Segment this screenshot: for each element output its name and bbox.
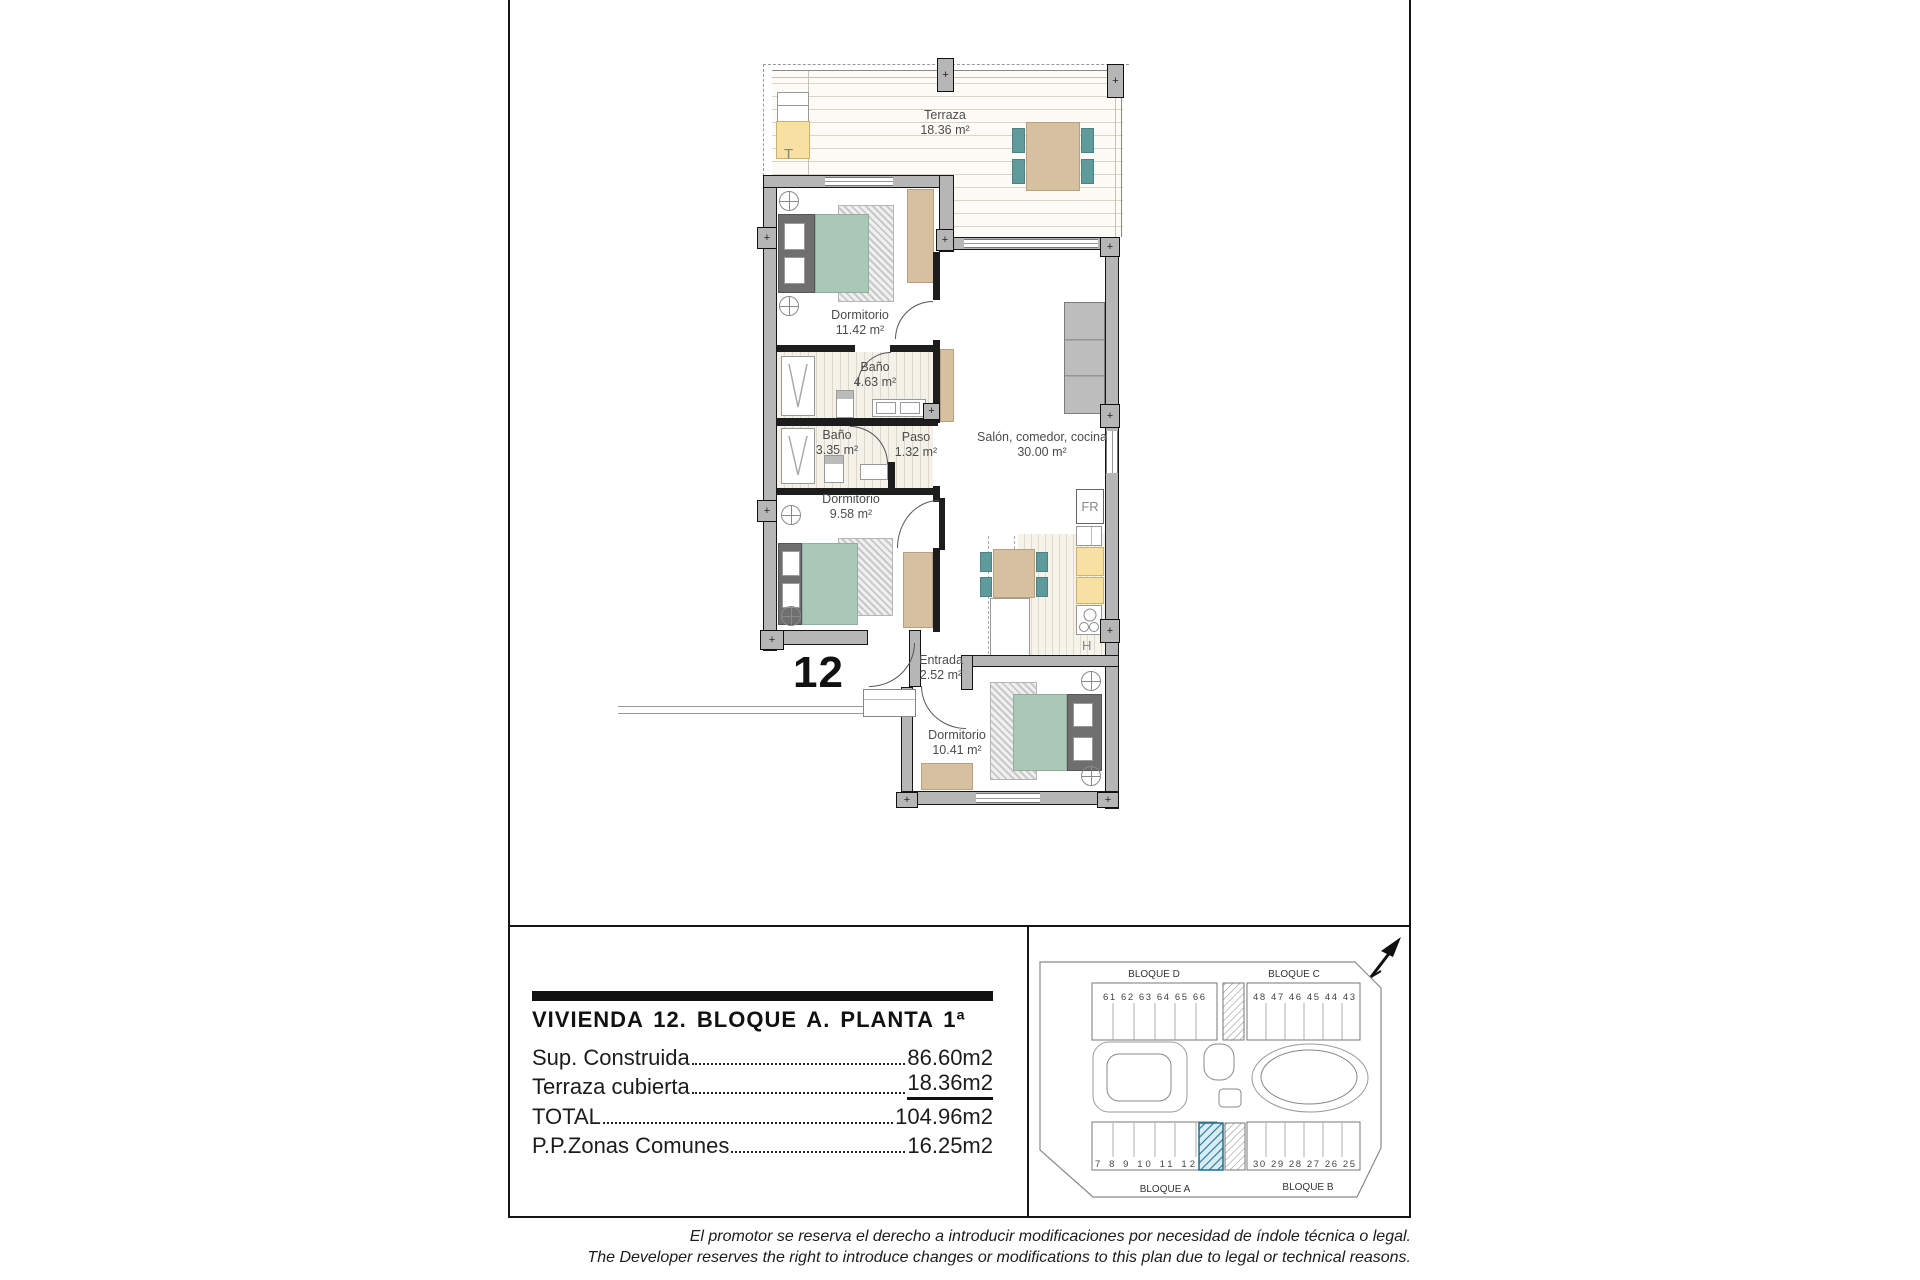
wall xyxy=(777,345,855,352)
page-title: VIVIENDA 12. BLOQUE A. PLANTA 1ª xyxy=(532,1007,966,1033)
pillow xyxy=(1073,737,1093,761)
title-bar xyxy=(532,991,993,1001)
bed xyxy=(802,543,858,625)
stair-core xyxy=(1225,1123,1245,1170)
area-table: Sup. Construida 86.60m2 Terraza cubierta… xyxy=(532,1041,993,1159)
dining-table xyxy=(993,549,1035,598)
shelf xyxy=(940,349,954,422)
block-b-label: BLOQUE B xyxy=(1282,1182,1333,1193)
chair xyxy=(980,552,992,572)
hob xyxy=(1076,605,1102,635)
kitchen-island xyxy=(990,598,1030,656)
post: + xyxy=(1100,619,1120,643)
stair-core xyxy=(1223,983,1244,1040)
unit-number: 12 xyxy=(793,648,844,698)
block-a-label: BLOQUE A xyxy=(1140,1184,1191,1195)
terrace-table xyxy=(1026,122,1080,191)
table-row: Terraza cubierta 18.36m2 xyxy=(532,1071,993,1101)
dotted-leader xyxy=(692,1092,906,1094)
room-label-bano-2: Baño3.35 m² xyxy=(816,428,858,458)
room-label-entrada: Entrada2.52 m² xyxy=(919,653,963,683)
window xyxy=(976,793,1040,803)
sink-basin xyxy=(860,464,888,480)
table-row: P.P.Zonas Comunes 16.25m2 xyxy=(532,1130,993,1160)
terrace-post: + xyxy=(937,58,954,92)
pillow xyxy=(782,583,800,608)
row-label: Terraza cubierta xyxy=(532,1074,690,1100)
hob-label: H xyxy=(1082,638,1091,653)
ceiling-light-icon xyxy=(1081,671,1101,691)
room-label-terraza: Terraza18.36 m² xyxy=(920,108,969,138)
chair xyxy=(980,577,992,597)
wall xyxy=(777,418,938,426)
pillow xyxy=(782,551,800,576)
unit-numbers-b: 30 29 28 27 26 25 xyxy=(1253,1159,1355,1170)
toilet xyxy=(836,390,854,418)
terrace-post: + xyxy=(1107,64,1124,98)
pillow xyxy=(784,257,805,284)
disclaimer-es: El promotor se reserva el derecho a intr… xyxy=(500,1226,1411,1247)
wall xyxy=(933,252,940,300)
terrace-chair xyxy=(1012,128,1025,153)
counter xyxy=(1076,577,1104,604)
disclaimer-en: The Developer reserves the right to intr… xyxy=(500,1247,1411,1268)
post: + xyxy=(757,227,777,249)
terrace-rail-right-inner xyxy=(1115,77,1116,237)
table-row: TOTAL 104.96m2 xyxy=(532,1100,993,1130)
sink-basin xyxy=(900,402,920,414)
walkway-line xyxy=(618,713,863,714)
bed xyxy=(1013,694,1067,771)
table-row: Sup. Construida 86.60m2 xyxy=(532,1041,993,1071)
north-arrow-icon xyxy=(1371,937,1401,977)
wall xyxy=(1105,237,1119,809)
pillow xyxy=(1073,703,1093,727)
shower xyxy=(781,428,815,484)
ceiling-light-icon xyxy=(779,191,799,211)
post: + xyxy=(757,500,777,522)
room-label-dormitorio-1: Dormitorio11.42 m² xyxy=(831,308,889,338)
window xyxy=(1106,431,1118,473)
terrace-chair xyxy=(1012,159,1025,184)
room-label-dormitorio-2: Dormitorio9.58 m² xyxy=(822,492,880,522)
row-value: 16.25m2 xyxy=(907,1133,993,1159)
bed xyxy=(815,214,869,293)
wardrobe xyxy=(907,189,934,283)
row-value: 18.36m2 xyxy=(907,1070,993,1100)
terrace-marker: T xyxy=(784,146,793,163)
pool xyxy=(1204,1044,1234,1080)
entrance-porch xyxy=(863,689,916,717)
ceiling-light-icon xyxy=(781,606,801,626)
row-value: 86.60m2 xyxy=(907,1045,993,1071)
post: + xyxy=(923,403,940,420)
row-label: TOTAL xyxy=(532,1104,601,1130)
sink-basin xyxy=(876,402,896,414)
post: + xyxy=(896,792,918,808)
block-c-label: BLOQUE C xyxy=(1268,969,1320,980)
post: + xyxy=(936,229,954,251)
chair xyxy=(1036,552,1048,572)
post: + xyxy=(1100,404,1120,428)
dotted-leader xyxy=(603,1122,893,1124)
chair xyxy=(1036,577,1048,597)
wardrobe xyxy=(903,552,933,628)
ceiling-light-icon xyxy=(781,505,801,525)
row-label: Sup. Construida xyxy=(532,1045,690,1071)
wall xyxy=(961,655,1119,667)
room-label-paso: Paso1.32 m² xyxy=(895,430,937,460)
fridge: FR xyxy=(1076,489,1104,524)
post: + xyxy=(760,630,784,650)
disclaimer: El promotor se reserva el derecho a intr… xyxy=(500,1226,1411,1268)
toilet xyxy=(824,455,844,483)
pool xyxy=(1219,1089,1241,1107)
room-label-bano-1: Baño4.63 m² xyxy=(854,360,896,390)
ceiling-light-icon xyxy=(1081,766,1101,786)
row-label: P.P.Zonas Comunes xyxy=(532,1133,729,1159)
door-leaf xyxy=(939,498,945,550)
room-label-dormitorio-3: Dormitorio10.41 m² xyxy=(928,728,986,758)
terrace-chair xyxy=(1081,159,1094,184)
room-label-salon: Salón, comedor, cocina30.00 m² xyxy=(977,430,1107,460)
pool xyxy=(1261,1050,1357,1104)
post: + xyxy=(1100,237,1120,257)
unit-numbers-c: 48 47 46 45 44 43 xyxy=(1253,992,1355,1003)
highlighted-unit-12 xyxy=(1199,1123,1223,1170)
site-plan: BLOQUE D BLOQUE C 61 62 63 64 65 66 48 4… xyxy=(1027,927,1411,1218)
dotted-leader xyxy=(692,1063,906,1065)
kitchen-sink xyxy=(1076,526,1102,546)
window xyxy=(964,239,1098,248)
unit-numbers-d: 61 62 63 64 65 66 xyxy=(1103,992,1205,1003)
dotted-leader xyxy=(731,1151,905,1153)
pool xyxy=(1107,1054,1171,1101)
terrace-chair xyxy=(1081,128,1094,153)
bench xyxy=(921,763,973,790)
wall xyxy=(890,345,939,352)
sofa xyxy=(1064,302,1105,414)
pillow xyxy=(784,223,805,250)
wall xyxy=(933,548,940,632)
window xyxy=(825,177,893,186)
row-value: 104.96m2 xyxy=(895,1104,993,1130)
shower xyxy=(781,356,815,416)
counter xyxy=(1076,547,1104,576)
wall xyxy=(888,462,895,488)
post: + xyxy=(1097,792,1119,808)
ceiling-light-icon xyxy=(779,296,799,316)
walkway-line xyxy=(618,706,863,707)
block-d-label: BLOQUE D xyxy=(1128,969,1180,980)
